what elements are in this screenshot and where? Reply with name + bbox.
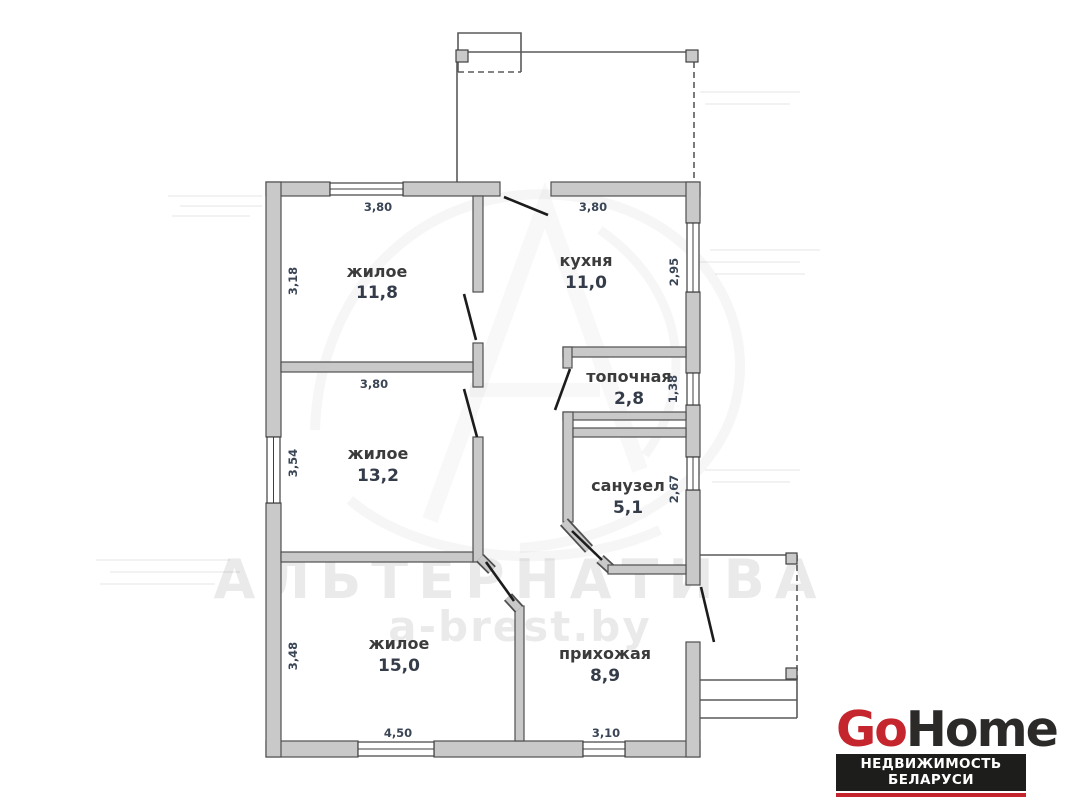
room-area-living2: 13,2: [357, 466, 399, 486]
dim-living2-left: 3,54: [286, 449, 300, 477]
terrace-post: [456, 50, 468, 62]
terrace-post: [686, 50, 698, 62]
window-boiler-right: [687, 373, 699, 405]
gohome-logo-wordmark: GoHome: [836, 706, 1026, 754]
window-living3-bottom: [358, 742, 434, 756]
room-name-living1: жилое: [347, 262, 408, 281]
floor-plan-page: АЛЬТЕРНАТИВА a-brest.by: [0, 0, 1068, 800]
room-area-hallway: 8,9: [590, 666, 620, 686]
dim-boiler-right: 1,38: [666, 375, 680, 403]
terrace-outline: [456, 33, 698, 186]
room-name-hallway: прихожая: [559, 644, 651, 663]
room-area-kitchen: 11,0: [565, 273, 607, 293]
background-hatching: [96, 92, 820, 584]
dim-living1-top: 3,80: [364, 200, 392, 214]
room-name-living3: жилое: [369, 634, 430, 653]
gohome-logo-home: Home: [906, 701, 1057, 758]
gohome-logo: GoHome НЕДВИЖИМОСТЬ БЕЛАРУСИ: [836, 706, 1026, 797]
gohome-logo-underline: [836, 793, 1026, 797]
porch-post: [786, 553, 797, 564]
dim-hallway-bottom: 3,10: [592, 726, 620, 740]
room-name-boiler: топочная: [586, 367, 671, 386]
room-area-living3: 15,0: [378, 656, 420, 676]
dim-bathroom-right: 2,67: [667, 475, 681, 503]
dim-living3-bottom: 4,50: [384, 726, 412, 740]
floor-plan-drawing: АЛЬТЕРНАТИВА a-brest.by: [0, 0, 1068, 800]
window-living1-top: [330, 183, 403, 195]
window-bathroom-right: [687, 457, 699, 490]
gohome-logo-tagline: НЕДВИЖИМОСТЬ БЕЛАРУСИ: [836, 754, 1026, 791]
dim-kitchen-right: 2,95: [667, 258, 681, 286]
dim-living2-top: 3,80: [360, 377, 388, 391]
dim-living1-left: 3,18: [286, 267, 300, 295]
dim-kitchen-top: 3,80: [579, 200, 607, 214]
window-hallway-bottom: [583, 742, 625, 756]
room-name-bathroom: санузел: [591, 476, 665, 495]
room-name-living2: жилое: [348, 444, 409, 463]
window-kitchen-right: [687, 223, 699, 292]
porch-post: [786, 668, 797, 679]
room-area-bathroom: 5,1: [613, 498, 643, 518]
porch-steps: [700, 680, 797, 718]
room-name-kitchen: кухня: [560, 251, 613, 270]
dim-living3-left: 3,48: [286, 642, 300, 670]
gohome-logo-go: Go: [836, 701, 906, 758]
living1-door-leaf: [464, 294, 476, 340]
room-area-living1: 11,8: [356, 283, 398, 303]
room-area-boiler: 2,8: [614, 389, 644, 409]
window-living2-left: [267, 437, 280, 503]
